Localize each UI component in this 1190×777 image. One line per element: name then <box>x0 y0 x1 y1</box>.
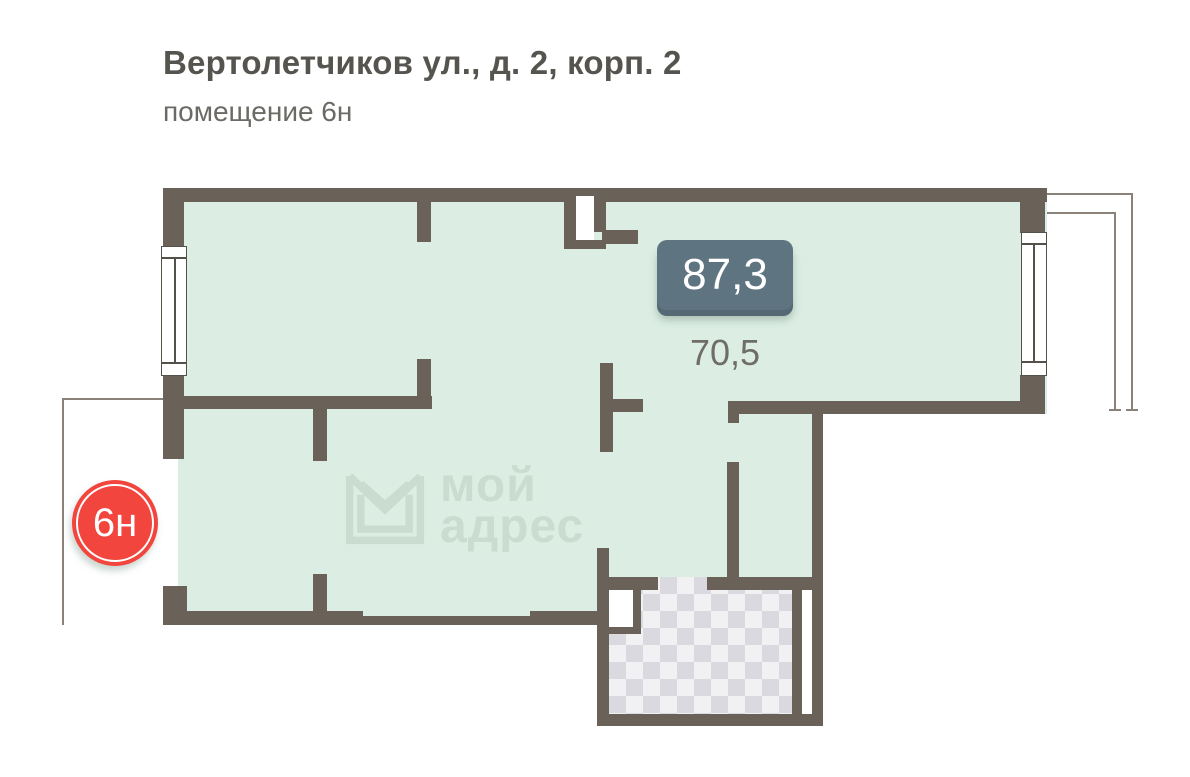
balcony-line <box>1114 212 1116 411</box>
wall-segment <box>313 409 327 461</box>
wall-segment <box>728 401 1020 414</box>
boundary-line <box>62 398 64 625</box>
wall-segment <box>597 714 823 726</box>
page-title: Вертолетчиков ул., д. 2, корп. 2 <box>163 44 682 82</box>
window-right-mullion <box>1033 243 1035 361</box>
secondary-area-label: 70,5 <box>658 332 792 374</box>
boundary-line <box>62 398 163 400</box>
wall-segment <box>1020 188 1045 233</box>
wall-segment <box>1020 375 1045 414</box>
wall-segment <box>163 611 363 625</box>
envelope-m-logo <box>345 465 425 545</box>
wall-segment <box>609 577 658 590</box>
niche-opening <box>576 196 594 240</box>
wall-segment <box>727 462 739 580</box>
wall-segment <box>313 574 327 612</box>
wall-segment <box>564 240 606 249</box>
page-subtitle: помещение 6н <box>163 96 352 128</box>
shaft-opening <box>609 590 633 628</box>
balcony-line <box>1047 212 1116 214</box>
room-fill-corridor <box>613 403 812 590</box>
wall-segment <box>728 414 739 423</box>
wall-segment <box>163 375 184 459</box>
balcony-line <box>1126 409 1138 411</box>
wall-segment <box>363 616 530 625</box>
wall-segment <box>812 414 823 726</box>
balcony-line <box>1109 409 1121 411</box>
wall-segment <box>184 396 432 409</box>
balcony-line <box>1131 193 1133 411</box>
total-area-value: 87,3 <box>682 250 768 300</box>
floor-plan-page: Вертолетчиков ул., д. 2, корп. 2 помещен… <box>0 0 1190 777</box>
unit-number-badge: 6н <box>72 480 158 566</box>
window-left-mullion <box>174 257 176 363</box>
balcony-line <box>1047 193 1133 195</box>
window-right-sill <box>1021 361 1047 363</box>
wall-segment <box>602 230 638 244</box>
wall-segment <box>594 188 606 232</box>
wall-segment <box>792 590 802 716</box>
watermark-line2: адрес <box>440 503 584 551</box>
total-area-badge: 87,3 <box>657 240 793 310</box>
wall-segment <box>597 548 609 726</box>
wall-segment <box>163 188 184 247</box>
wall-segment <box>707 577 812 590</box>
wall-segment <box>609 627 641 634</box>
wall-segment <box>417 200 431 242</box>
wall-segment <box>600 363 613 452</box>
unit-number-label: 6н <box>93 503 137 543</box>
wall-segment <box>613 399 643 412</box>
